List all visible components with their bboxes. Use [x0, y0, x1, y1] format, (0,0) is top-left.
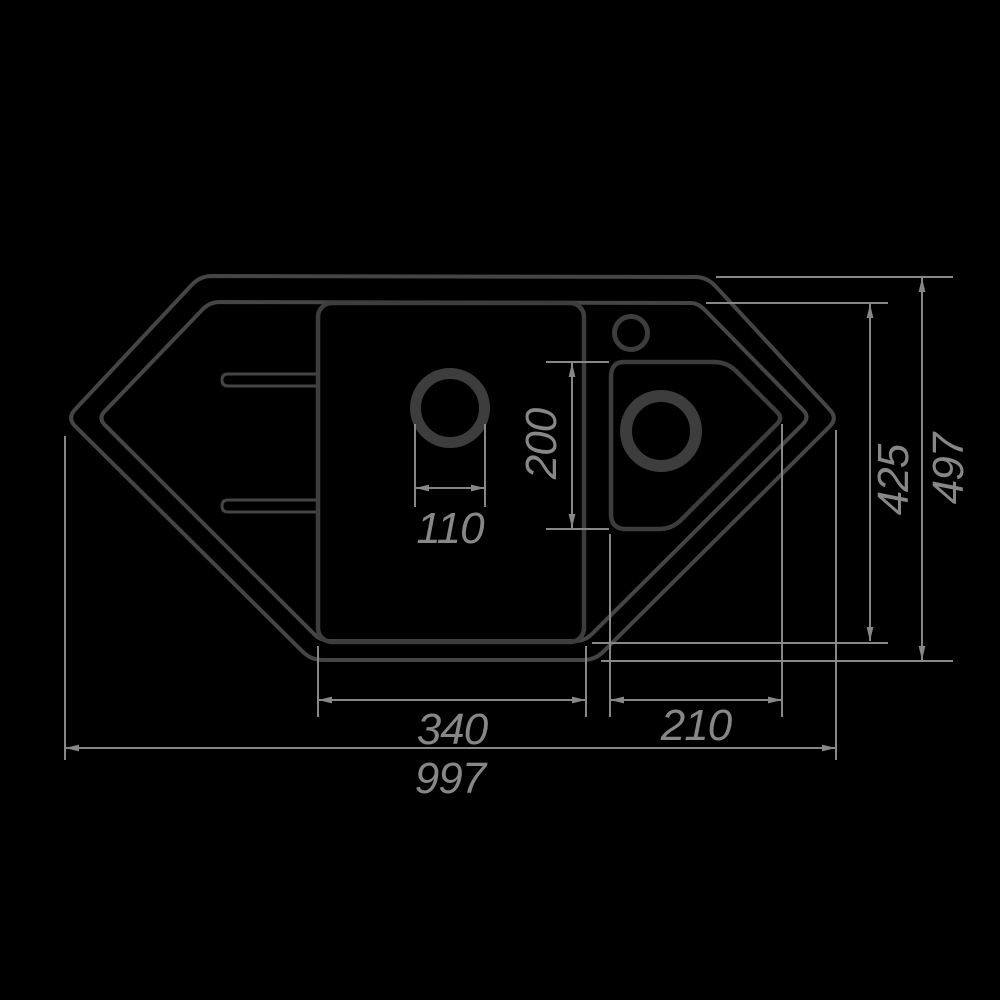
dim-label-210: 210	[660, 701, 733, 750]
dim-label-497: 497	[924, 431, 973, 504]
drawing-canvas: 997 340 210 110 200 425 497	[0, 0, 1000, 1000]
dimension-drain-diameter: 110	[415, 488, 485, 553]
dimension-main-bowl-width: 340	[318, 700, 586, 754]
dim-label-110: 110	[416, 504, 485, 553]
drainer-grooves	[222, 374, 318, 512]
dimension-small-bowl-width: 210	[610, 700, 782, 750]
dimension-small-bowl-depth: 200	[517, 363, 572, 528]
sink-outer-outline	[71, 276, 834, 660]
sink-inner-rim-outline	[101, 302, 806, 641]
dimension-total-width: 997	[65, 748, 836, 803]
drainer-groove-top	[222, 374, 318, 386]
small-drain-hole	[626, 396, 696, 466]
dimension-inner-depth: 425	[869, 304, 918, 641]
dim-label-340: 340	[417, 705, 489, 754]
dim-label-200: 200	[517, 407, 566, 480]
dim-label-997: 997	[415, 754, 488, 803]
sink-outlines	[71, 276, 834, 660]
tap-hole	[615, 317, 648, 350]
drainer-groove-bottom	[222, 500, 318, 512]
sink-technical-drawing: 997 340 210 110 200 425 497	[0, 0, 1000, 1000]
dim-label-425: 425	[869, 443, 918, 515]
main-drain-hole	[416, 374, 485, 443]
dimension-total-depth: 497	[922, 278, 973, 660]
